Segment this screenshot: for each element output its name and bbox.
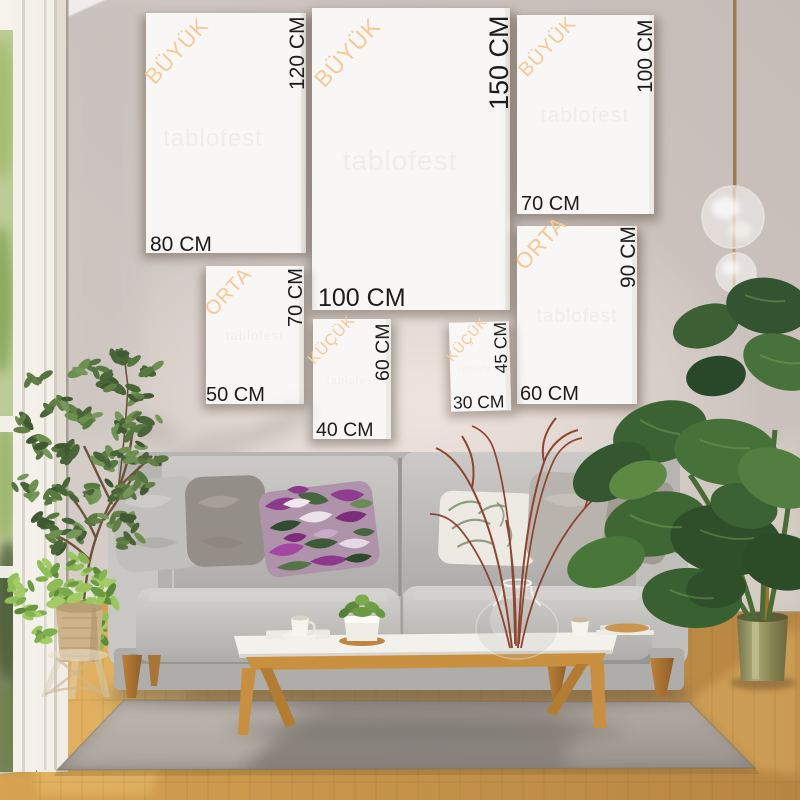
svg-text:tablofest: tablofest [537, 306, 618, 327]
svg-text:70 CM: 70 CM [521, 193, 580, 215]
svg-text:90 CM: 90 CM [617, 226, 640, 288]
svg-text:60 CM: 60 CM [520, 383, 579, 405]
svg-text:tablofest: tablofest [163, 125, 263, 152]
svg-text:30 CM: 30 CM [453, 391, 505, 412]
svg-text:150 CM: 150 CM [484, 15, 514, 110]
svg-text:120 CM: 120 CM [286, 16, 309, 90]
svg-text:40 CM: 40 CM [316, 419, 373, 441]
svg-text:tablofest: tablofest [458, 363, 501, 374]
svg-text:80 CM: 80 CM [150, 233, 212, 256]
svg-text:100 CM: 100 CM [318, 284, 406, 312]
svg-text:tablofest: tablofest [327, 375, 378, 387]
svg-text:100 CM: 100 CM [634, 19, 657, 93]
svg-text:tablofest: tablofest [226, 328, 284, 343]
svg-text:tablofest: tablofest [541, 104, 629, 127]
svg-text:tablofest: tablofest [343, 145, 458, 176]
svg-text:50 CM: 50 CM [206, 384, 265, 406]
svg-text:60 CM: 60 CM [372, 324, 394, 381]
svg-text:70 CM: 70 CM [285, 268, 307, 327]
